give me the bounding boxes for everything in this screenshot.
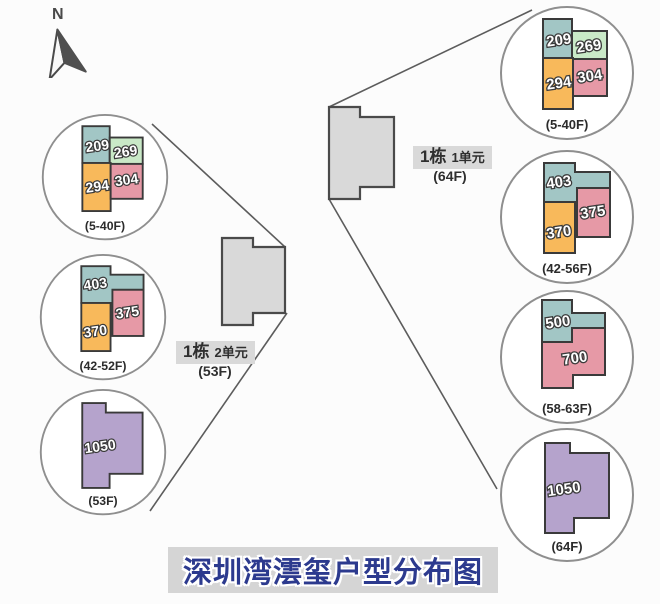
floorplan-circle-left-3: 1050 (53F) xyxy=(37,388,169,520)
tower-name: 1栋 xyxy=(420,147,446,166)
unit-area: 375 xyxy=(579,202,606,222)
floorplan-circle-right-1: 209 269 294 304 (5-40F) xyxy=(497,5,637,145)
compass-north-label: N xyxy=(52,6,64,24)
page-title: 深圳湾澐玺户型分布图 xyxy=(183,549,483,591)
unit-area: 294 xyxy=(545,73,573,93)
floor-range-label: (5-40F) xyxy=(85,219,125,233)
tower-label-unit2: 1栋2单元 xyxy=(176,341,255,364)
tower-unit: 2单元 xyxy=(214,345,247,360)
unit-area: 209 xyxy=(84,136,110,155)
unit-area: 500 xyxy=(544,312,571,332)
floorplan-circle-right-2: 403 375 370 (42-56F) xyxy=(497,149,637,289)
connector-line-right-bottom xyxy=(329,199,497,489)
tower-name: 1栋 xyxy=(183,342,209,361)
floor-range-label: (5-40F) xyxy=(546,117,589,132)
unit-area: 403 xyxy=(82,274,108,293)
floor-range-label: (58-63F) xyxy=(542,401,592,416)
unit-area: 269 xyxy=(575,36,602,56)
tower-footprint-unit2 xyxy=(222,238,285,325)
floor-range-label: (42-56F) xyxy=(542,261,592,276)
connector-line-left-top xyxy=(152,124,285,247)
floorplan-circle-left-2: 403 375 370 (42-52F) xyxy=(37,253,169,385)
floorplan-distribution-diagram: N 209 269 294 304 (5-40F) 403 375 370 (4… xyxy=(0,0,660,604)
floorplan-circle-right-4: 1050 (64F) xyxy=(497,427,637,567)
unit-area: 269 xyxy=(113,142,139,161)
floor-range-label: (42-52F) xyxy=(80,359,127,373)
tower-footprint-unit1 xyxy=(329,107,394,199)
unit-area: 294 xyxy=(84,177,110,196)
tower-floors-unit2: (53F) xyxy=(176,363,254,379)
unit-area: 370 xyxy=(545,222,572,242)
unit-area: 304 xyxy=(114,170,140,189)
title-banner: 深圳湾澐玺户型分布图 xyxy=(168,547,498,593)
floor-range-label: (53F) xyxy=(88,494,117,508)
unit-area: 370 xyxy=(82,321,108,340)
floorplan-circle-right-3: 500 700 (58-63F) xyxy=(497,289,637,429)
floorplan-circle-left-1: 209 269 294 304 (5-40F) xyxy=(39,113,171,245)
tower-floors-unit1: (64F) xyxy=(413,168,487,184)
tower-label-unit1: 1栋1单元 xyxy=(413,146,492,169)
unit-area: 375 xyxy=(115,303,141,322)
tower-unit: 1单元 xyxy=(451,150,484,165)
unit-area: 209 xyxy=(545,30,572,50)
unit-area: 403 xyxy=(545,172,572,192)
north-arrow-icon xyxy=(37,26,89,78)
floor-range-label: (64F) xyxy=(551,539,582,554)
unit-area: 304 xyxy=(576,66,604,86)
unit-area: 700 xyxy=(561,348,588,368)
